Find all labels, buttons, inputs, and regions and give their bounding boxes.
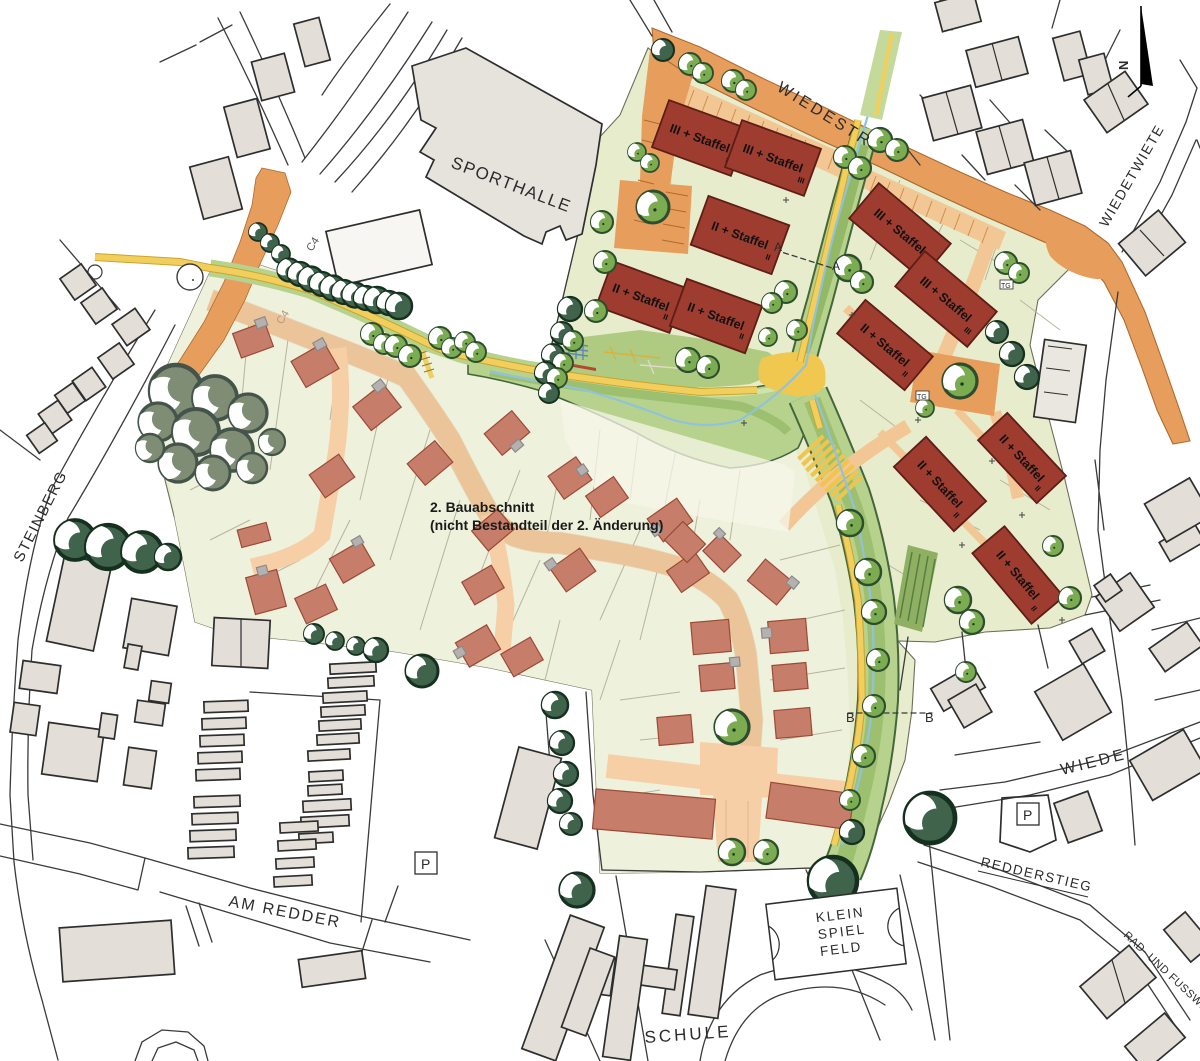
svg-text:TG: TG [917, 394, 927, 401]
svg-text:P: P [1023, 807, 1032, 823]
svg-text:(nicht Bestandteil der 2. Ände: (nicht Bestandteil der 2. Änderung) [430, 517, 663, 533]
svg-text:B: B [925, 710, 934, 725]
svg-text:N: N [1116, 61, 1131, 70]
svg-text:B: B [846, 710, 855, 725]
svg-text:A: A [832, 259, 840, 273]
svg-text:TG: TG [1001, 283, 1011, 290]
svg-text:2. Bauabschnitt: 2. Bauabschnitt [430, 499, 535, 515]
svg-text:A: A [774, 240, 782, 254]
svg-text:P: P [421, 856, 430, 872]
